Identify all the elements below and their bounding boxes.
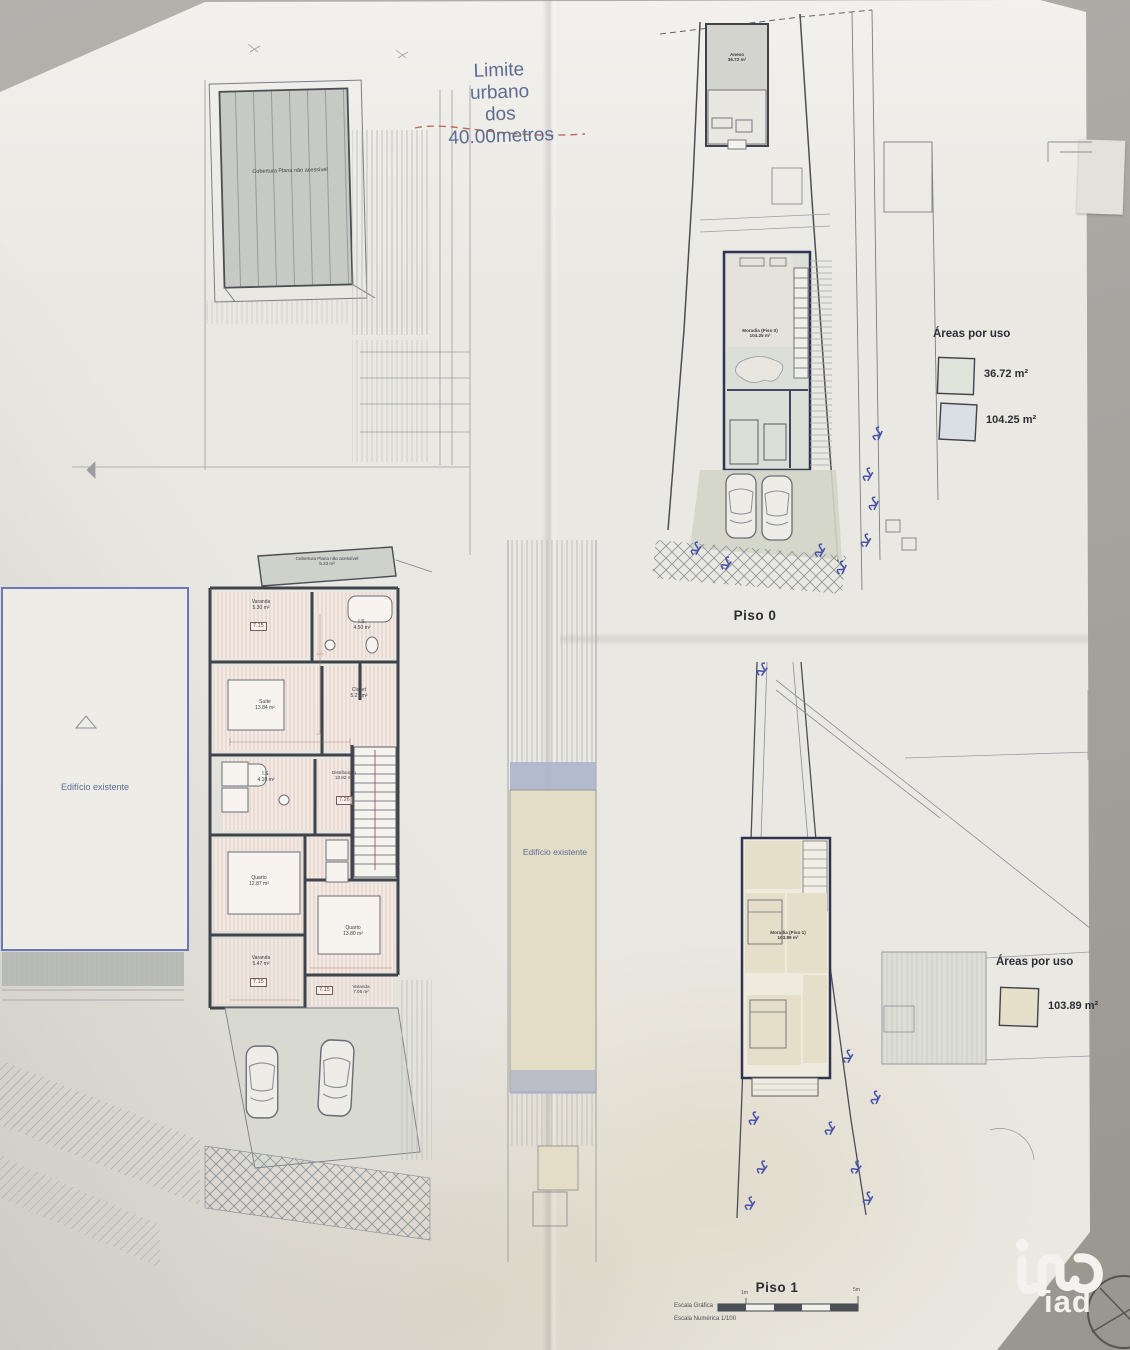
anexo-label: Anexo 36.72 m² <box>716 52 758 63</box>
room-label-is-2: I.S. 4.10 m² <box>246 772 286 784</box>
left-plan-parking <box>225 980 432 1168</box>
car-icon <box>318 1039 355 1116</box>
level-badge: 7.15 <box>250 978 267 987</box>
room-label-distribuicao: Distribuição 13.82 m² <box>322 770 366 781</box>
room-label-varanda-3: Varanda 7.05 m² <box>338 984 384 995</box>
car-icon <box>726 474 756 538</box>
plan-linework <box>0 0 1130 1350</box>
level-badge: 7.15 <box>250 622 267 631</box>
moradia-piso0-label: Moradia (Piso 0) 104.25 m² <box>734 328 786 339</box>
piso0-legend-title: Áreas por uso <box>933 328 1010 341</box>
moradia-piso1-label: Moradia (Piso 1) 103.89 m² <box>762 930 814 941</box>
left-neighbor-building <box>2 588 188 1000</box>
room-label-suite: Suíte 13.84 m² <box>238 700 292 712</box>
edificio-existente-left: Edifício existente <box>40 782 150 792</box>
limite-urbano-note: Limite urbano dos 40.00metros <box>437 58 564 150</box>
piso1-legend-swatch-group <box>999 987 1038 1026</box>
room-label-varanda-1: Varanda 5.30 m² <box>236 600 286 612</box>
graphic-scale-bar <box>718 1296 858 1311</box>
room-label-is-1: I.S. 4.50 m² <box>342 620 382 632</box>
left-roof-block <box>209 80 375 302</box>
piso0-legend-swatches <box>937 357 977 441</box>
piso0-legend-value-2: 104.25 m² <box>986 414 1036 427</box>
scale-tick-5m: 5m <box>853 1288 860 1294</box>
legend-swatch-moradia0 <box>939 403 977 441</box>
mid-strip-neighbor <box>508 540 596 1262</box>
room-label-quarto-2: Quarto 13.80 m² <box>328 926 378 938</box>
roof-strip-label: Cobertura Plana não acessível 5.23 m² <box>284 556 370 567</box>
piso0-legend-value-1: 36.72 m² <box>984 368 1028 381</box>
level-badge: 7.15 <box>316 986 333 995</box>
car-icon <box>246 1046 278 1118</box>
piso1-legend-value: 103.89 m² <box>1048 1000 1098 1013</box>
room-label-closet: Closet 5.27 m² <box>336 688 382 700</box>
legend-swatch-moradia1 <box>999 987 1038 1026</box>
piso1-title: Piso 1 <box>722 1280 832 1296</box>
iad-logo-text: iad <box>1044 1284 1092 1320</box>
room-label-quarto-1: Quarto 12.87 m² <box>234 876 284 888</box>
level-badge: 7.26 <box>336 796 353 805</box>
left-plan-stairs <box>354 747 396 877</box>
photo-of-floor-plans: Limite urbano dos 40.00metros Cobertura … <box>0 0 1130 1350</box>
scale-tick-1m: 1m <box>741 1291 748 1297</box>
room-label-varanda-2: Varanda 5.47 m² <box>236 956 286 968</box>
piso0-title: Piso 0 <box>700 608 810 624</box>
piso1-legend-title: Áreas por uso <box>996 956 1073 969</box>
scale-numeric-label: Escala Numérica 1/100 <box>674 1316 736 1323</box>
piso0-site-plan <box>652 10 1092 594</box>
car-icon <box>762 476 792 540</box>
legend-swatch-anexo <box>937 357 974 394</box>
edificio-existente-right: Edifício existente <box>510 848 600 858</box>
scale-graphic-label: Escala Gráfica <box>674 1303 713 1310</box>
